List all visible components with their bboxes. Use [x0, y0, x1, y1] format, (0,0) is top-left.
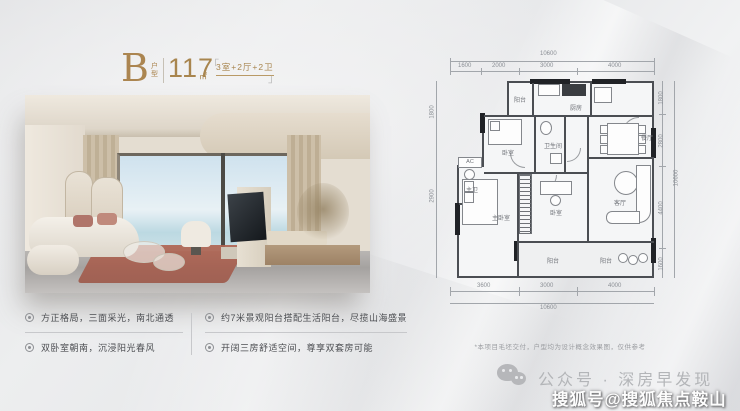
partition [484, 115, 654, 117]
pillow [73, 215, 93, 227]
dining-chair-icon [600, 145, 608, 154]
pillow-icon [490, 121, 500, 131]
partition [532, 83, 534, 115]
room-label-bedroom-a: 卧室 [502, 148, 514, 157]
dim-left-seg: 1800 [430, 105, 436, 118]
room-label-bathroom: 卫生间 [544, 141, 562, 150]
dim-right-seg: 1600 [659, 257, 665, 270]
disclaimer-text: *本项目毛坯交付，户型均为设计概念效果图，仅供参考 [450, 341, 670, 351]
dim-tick [481, 68, 482, 75]
room-label-dining: 餐厅 [641, 133, 653, 142]
dim-tick [577, 68, 578, 75]
washer-icon [464, 169, 475, 180]
sink-icon [550, 153, 562, 164]
feature-text: 开阔三房舒适空间，尊享双套房可能 [221, 341, 373, 354]
accent-chair [181, 221, 211, 247]
page: B 户型 117 ㎡ 「 3室+2厅+2卫 」 [0, 0, 740, 411]
partition [587, 116, 589, 243]
dim-line [436, 81, 437, 278]
wechat-eye [520, 376, 523, 379]
sofa-ottoman [27, 245, 79, 275]
dim-top-seg: 4000 [608, 63, 621, 69]
dim-top-seg: 3000 [540, 63, 553, 69]
planter-icon [618, 253, 628, 263]
kitchen-sink-icon [538, 84, 560, 96]
dining-chair-icon [638, 145, 646, 154]
planter-icon [628, 255, 638, 265]
toilet-icon [540, 121, 552, 135]
feature-item: 方正格局，三面采光，南北通透 [25, 311, 183, 324]
dim-right-seg: 1800 [659, 91, 665, 104]
stove-icon [562, 84, 586, 96]
dim-right-seg: 4400 [659, 201, 665, 214]
header-divider [163, 58, 164, 83]
partition [484, 172, 587, 174]
dim-tick [450, 58, 451, 75]
dim-tick [659, 114, 666, 115]
wechat-icon [497, 364, 531, 390]
dim-right-total: 10600 [673, 170, 679, 187]
bracket-close: 」 [268, 70, 279, 86]
stairs-icon [519, 174, 532, 234]
desk-chair-icon [550, 195, 561, 206]
dim-tick [659, 166, 666, 167]
wechat-bubble-small [511, 372, 526, 385]
feature-list-right: 约7米景观阳台搭配生活阳台，尽揽山海盛景 开阔三房舒适空间，尊享双套房可能 [205, 311, 407, 354]
room-master-extension [457, 243, 517, 278]
partition [564, 116, 566, 173]
wechat-eye [515, 376, 518, 379]
dim-tick [654, 287, 655, 296]
plant [297, 183, 349, 241]
wall-chunk [455, 203, 460, 235]
dim-bottom-seg: 4000 [608, 283, 621, 289]
layout-spec: 3室+2厅+2卫 [216, 61, 274, 76]
dining-chair-icon [600, 135, 608, 144]
dim-line [450, 303, 654, 304]
unit-letter: B [121, 48, 149, 88]
feature-text: 方正格局，三面采光，南北通透 [41, 311, 174, 324]
dim-tick [450, 287, 451, 296]
dim-bottom-seg: 3600 [477, 283, 490, 289]
feature-item: 开阔三房舒适空间，尊享双套房可能 [205, 341, 407, 354]
room-label-balcony-top: 阳台 [514, 95, 526, 104]
coffee-table [153, 253, 185, 271]
wechat-eye [502, 369, 505, 372]
feature-text: 约7米景观阳台搭配生活阳台，尽揽山海盛景 [221, 311, 407, 324]
bullet-icon [205, 313, 214, 322]
room-label-balcony-life: 阳台 [547, 256, 559, 265]
room-label-kitchen: 厨房 [570, 103, 582, 112]
feature-text: 双卧室朝南，沉浸阳光春风 [41, 341, 155, 354]
dim-line [450, 61, 654, 62]
room-label-master-bath: 主卫 [466, 185, 478, 194]
feature-item: 约7米景观阳台搭配生活阳台，尽揽山海盛景 [205, 311, 407, 324]
feature-divider-line [205, 332, 407, 333]
area-unit: ㎡ [199, 71, 207, 82]
dining-table-icon [607, 123, 639, 155]
dim-tick [659, 248, 666, 249]
room-label-master-bedroom: 主卧室 [492, 213, 510, 222]
dim-left-seg: 2900 [430, 189, 436, 202]
dim-line [450, 291, 654, 292]
dim-tick [654, 58, 655, 75]
partition [587, 157, 654, 159]
bullet-icon [25, 343, 34, 352]
wood-deck [265, 245, 360, 265]
ac-unit-label: AC [458, 157, 482, 168]
wall-chunk [592, 79, 626, 84]
watermark-text: 搜狐号@搜狐焦点鞍山站 [552, 386, 740, 411]
dining-chair-icon [600, 125, 608, 134]
fridge-icon [594, 87, 612, 103]
wall [457, 276, 654, 278]
partition [534, 116, 536, 173]
wall [507, 81, 509, 117]
feature-divider-line [25, 332, 183, 333]
desk-icon [540, 181, 572, 195]
tv-screen [227, 192, 266, 242]
partition [518, 241, 654, 243]
room-label-bedroom-b: 卧室 [550, 208, 562, 217]
dim-top-seg: 1600 [458, 63, 471, 69]
partition [590, 83, 592, 115]
dim-bottom-total: 10600 [540, 305, 557, 311]
feature-column-divider [191, 313, 192, 355]
sofa-chaise-icon [606, 211, 640, 224]
floorplan: 10600 1600 2000 3000 4000 1800 2900 1800… [422, 53, 694, 358]
dim-tick [519, 287, 520, 296]
dim-right-seg: 2800 [659, 134, 665, 147]
dim-tick [519, 68, 520, 75]
room-label-balcony-view: 阳台 [600, 256, 612, 265]
feature-item: 双卧室朝南，沉浸阳光春风 [25, 341, 183, 354]
window-mullion [221, 153, 225, 251]
dim-tick [577, 287, 578, 296]
room-label-living: 客厅 [614, 198, 626, 207]
wechat-eye [509, 369, 512, 372]
planter-icon [638, 253, 648, 263]
bullet-icon [25, 313, 34, 322]
round-table-icon [614, 171, 638, 195]
unit-type-label: 户型 [151, 63, 160, 79]
pillow [97, 213, 117, 225]
interior-rendering-photo [25, 95, 370, 293]
dim-bottom-seg: 3000 [540, 283, 553, 289]
dim-top-total: 10600 [540, 51, 557, 57]
bullet-icon [205, 343, 214, 352]
dim-top-seg: 2000 [492, 63, 505, 69]
feature-list-left: 方正格局，三面采光，南北通透 双卧室朝南，沉浸阳光春风 [25, 311, 183, 354]
